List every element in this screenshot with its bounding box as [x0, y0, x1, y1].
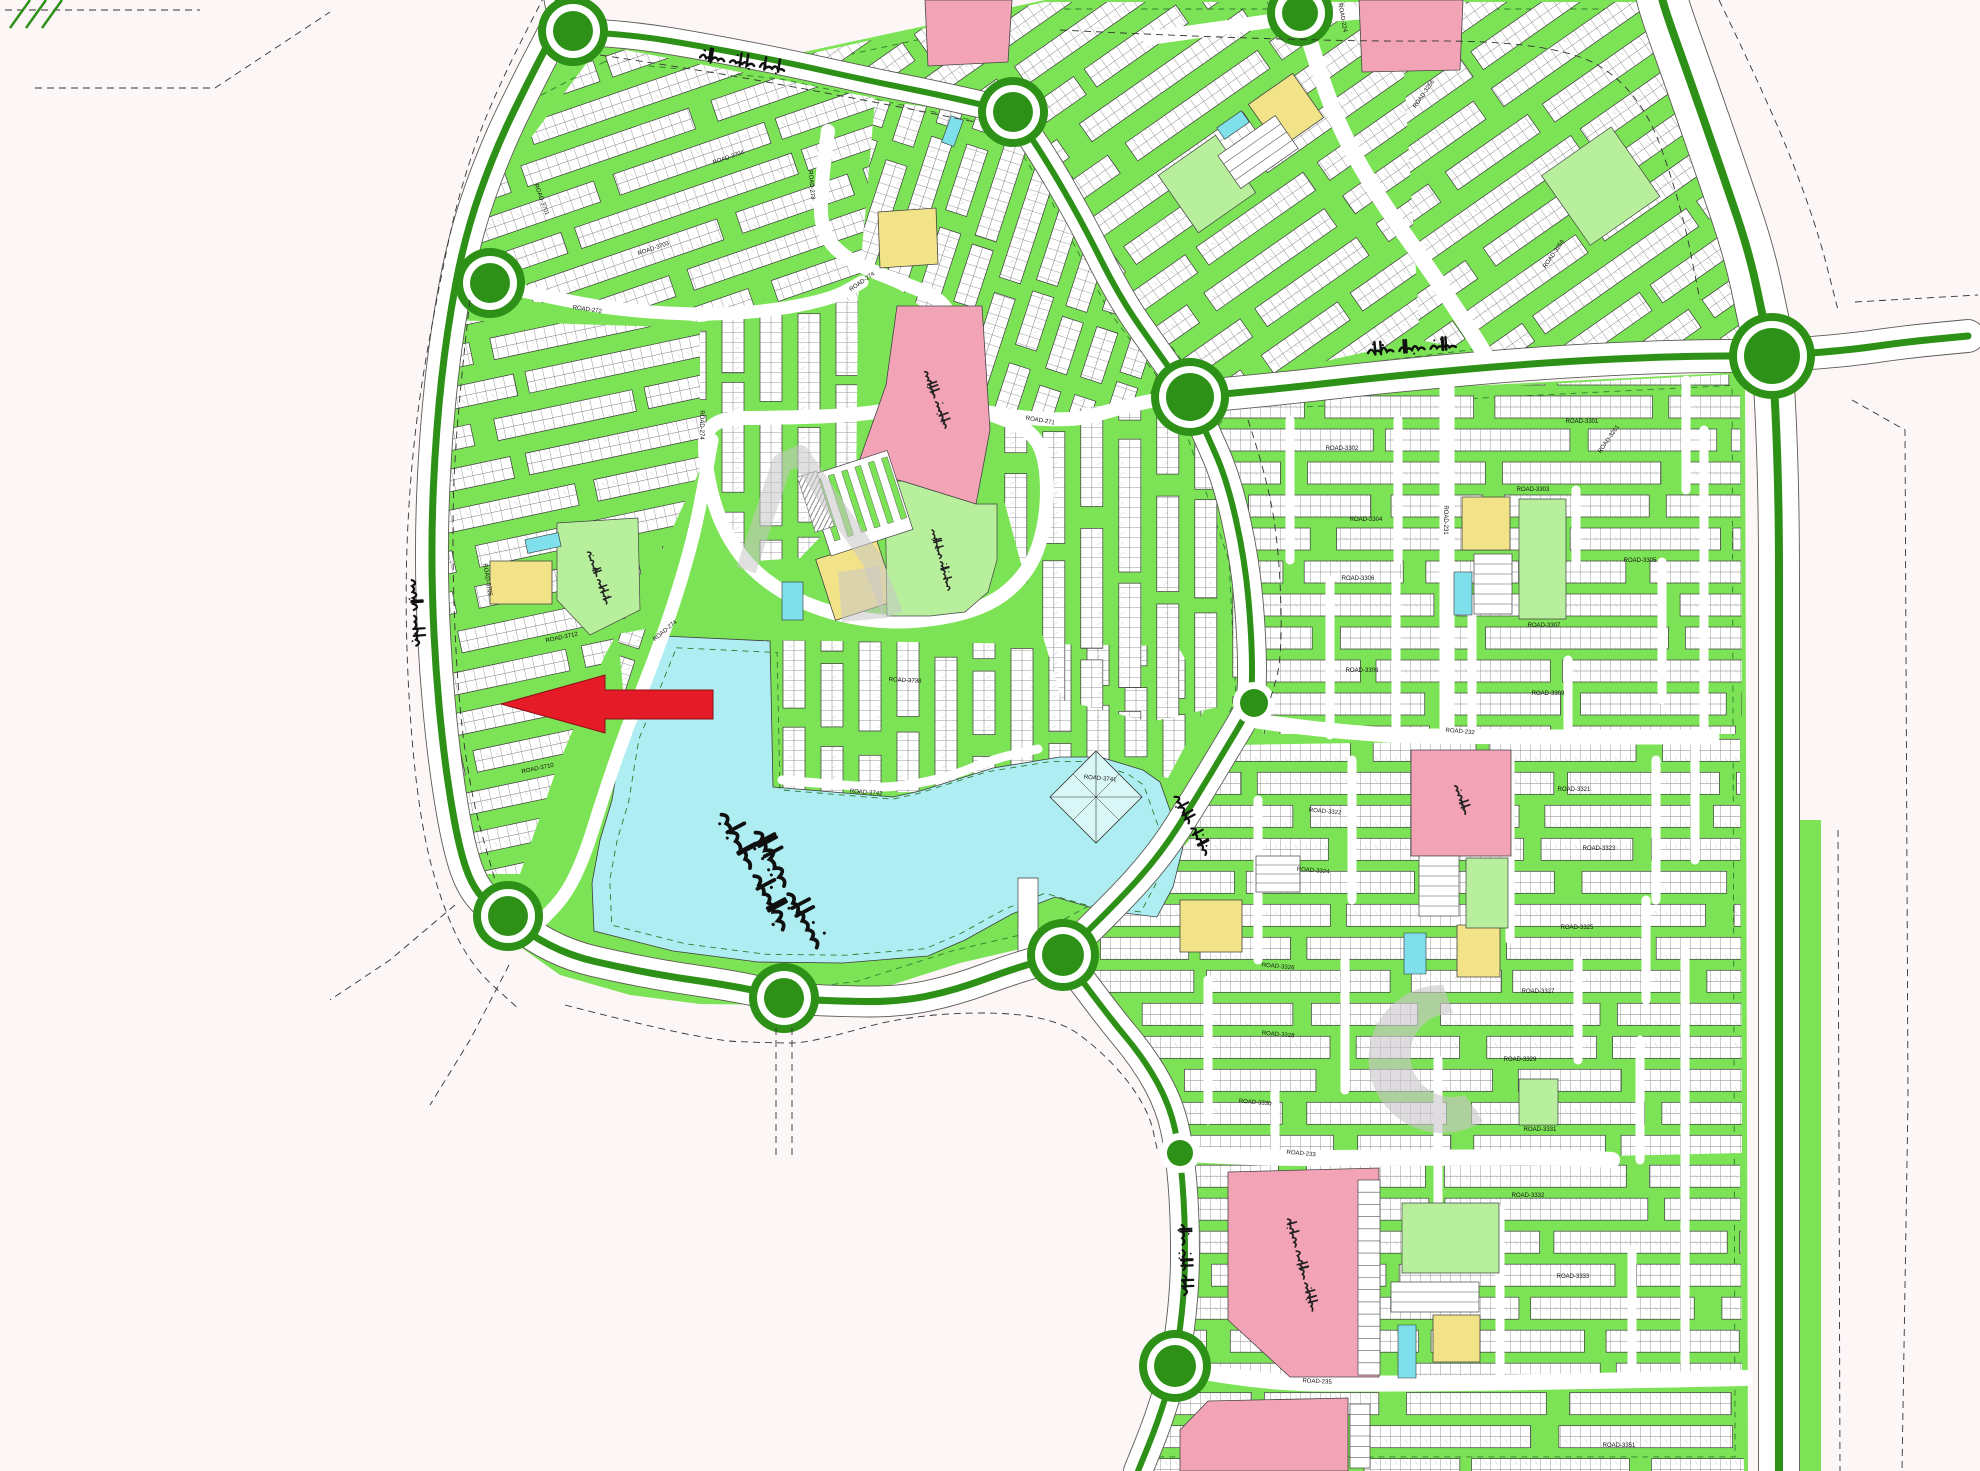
svg-text:ROAD-3305: ROAD-3305 — [1624, 558, 1657, 564]
svg-text:ROAD-3327: ROAD-3327 — [1522, 989, 1555, 995]
svg-text:ROAD-3329: ROAD-3329 — [1504, 1057, 1537, 1063]
svg-text:ROAD-3307: ROAD-3307 — [1528, 623, 1561, 629]
svg-text:ROAD-3309: ROAD-3309 — [1532, 691, 1565, 697]
svg-text:ROAD-231: ROAD-231 — [1442, 505, 1448, 535]
svg-text:ROAD-3331: ROAD-3331 — [1524, 1127, 1557, 1133]
svg-text:ROAD-3306: ROAD-3306 — [1342, 576, 1375, 582]
svg-text:ROAD-3302: ROAD-3302 — [1326, 446, 1359, 452]
svg-text:ROAD-3304: ROAD-3304 — [1350, 517, 1383, 523]
svg-text:ROAD-3332: ROAD-3332 — [1512, 1193, 1545, 1199]
svg-text:ROAD-3301: ROAD-3301 — [1566, 419, 1599, 425]
svg-text:ROAD-3333: ROAD-3333 — [1557, 1274, 1590, 1280]
svg-text:ROAD-274: ROAD-274 — [698, 410, 704, 440]
svg-text:ROAD-3325: ROAD-3325 — [1561, 925, 1594, 931]
svg-text:ROAD-3323: ROAD-3323 — [1583, 846, 1616, 852]
svg-text:ROAD-3351: ROAD-3351 — [1603, 1443, 1636, 1449]
svg-text:ROAD-3303: ROAD-3303 — [1517, 487, 1550, 493]
svg-text:ROAD-3321: ROAD-3321 — [1558, 787, 1591, 793]
svg-text:ROAD-3308: ROAD-3308 — [1346, 668, 1379, 674]
